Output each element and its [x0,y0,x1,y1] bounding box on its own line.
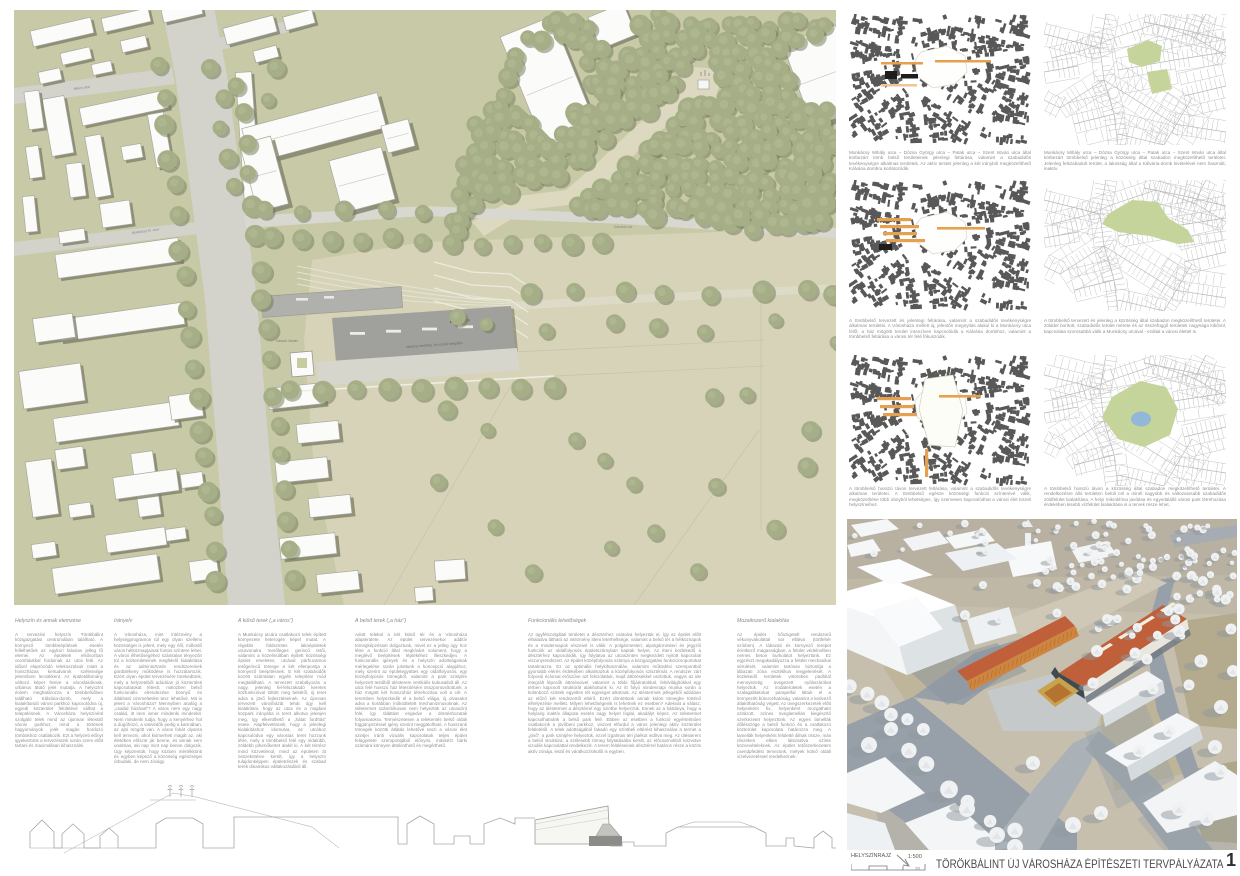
svg-text:Kálvária köz: Kálvária köz [614,225,633,229]
svg-text:Városh. köztér: Városh. köztér [276,339,299,343]
